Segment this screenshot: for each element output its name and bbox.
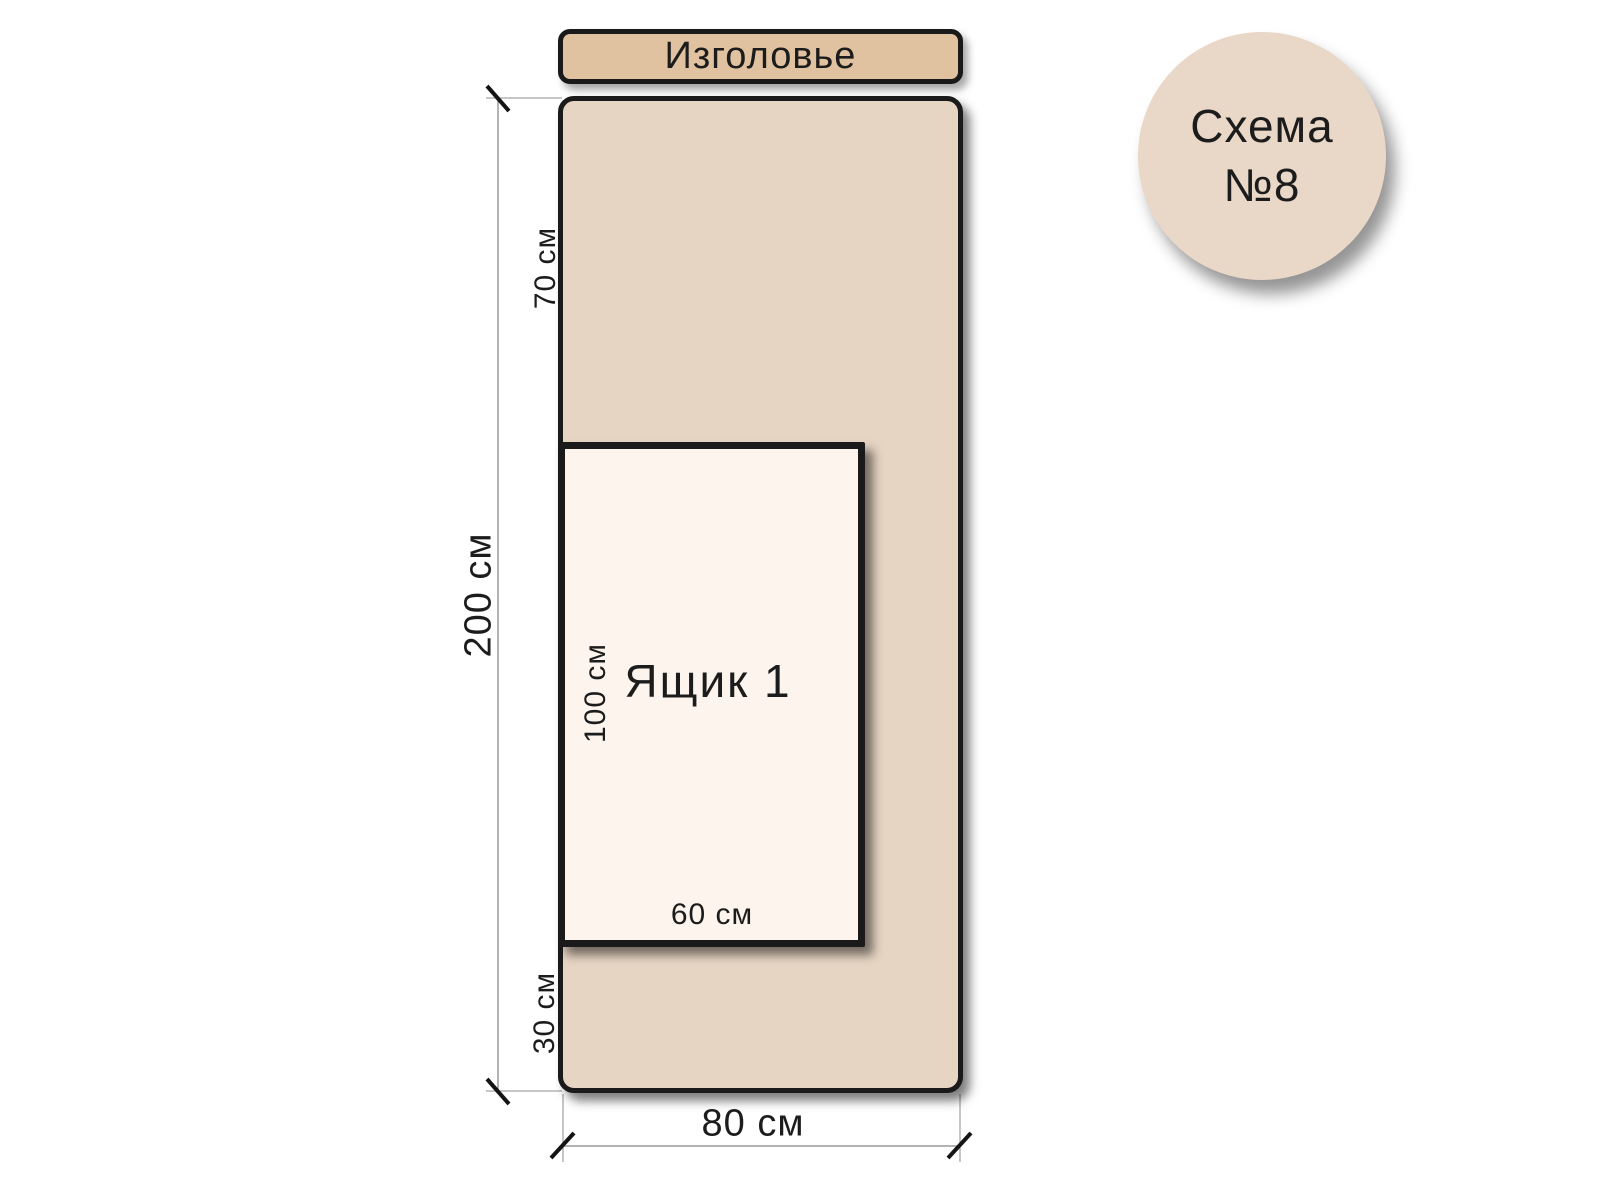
headboard-box: Изголовье [558,29,963,84]
headboard-label: Изголовье [665,35,857,78]
scheme-badge: Схема №8 [1138,32,1386,280]
drawer-length-label: 100 см [579,643,613,743]
bed-length-label: 200 см [458,532,501,657]
scheme-badge-line1: Схема [1190,97,1334,156]
scheme-badge-line2: №8 [1224,156,1301,215]
bed-foot-offset-label: 30 см [528,972,562,1054]
bed-headboard-offset-label: 70 см [529,227,563,309]
drawer-width-label: 60 см [671,898,753,932]
diagram-canvas: Изголовье 200 см 70 см 30 см 80 см 100 с… [0,0,1600,1200]
bed-width-label: 80 см [702,1103,805,1146]
drawer-label: Ящик 1 [624,654,791,708]
